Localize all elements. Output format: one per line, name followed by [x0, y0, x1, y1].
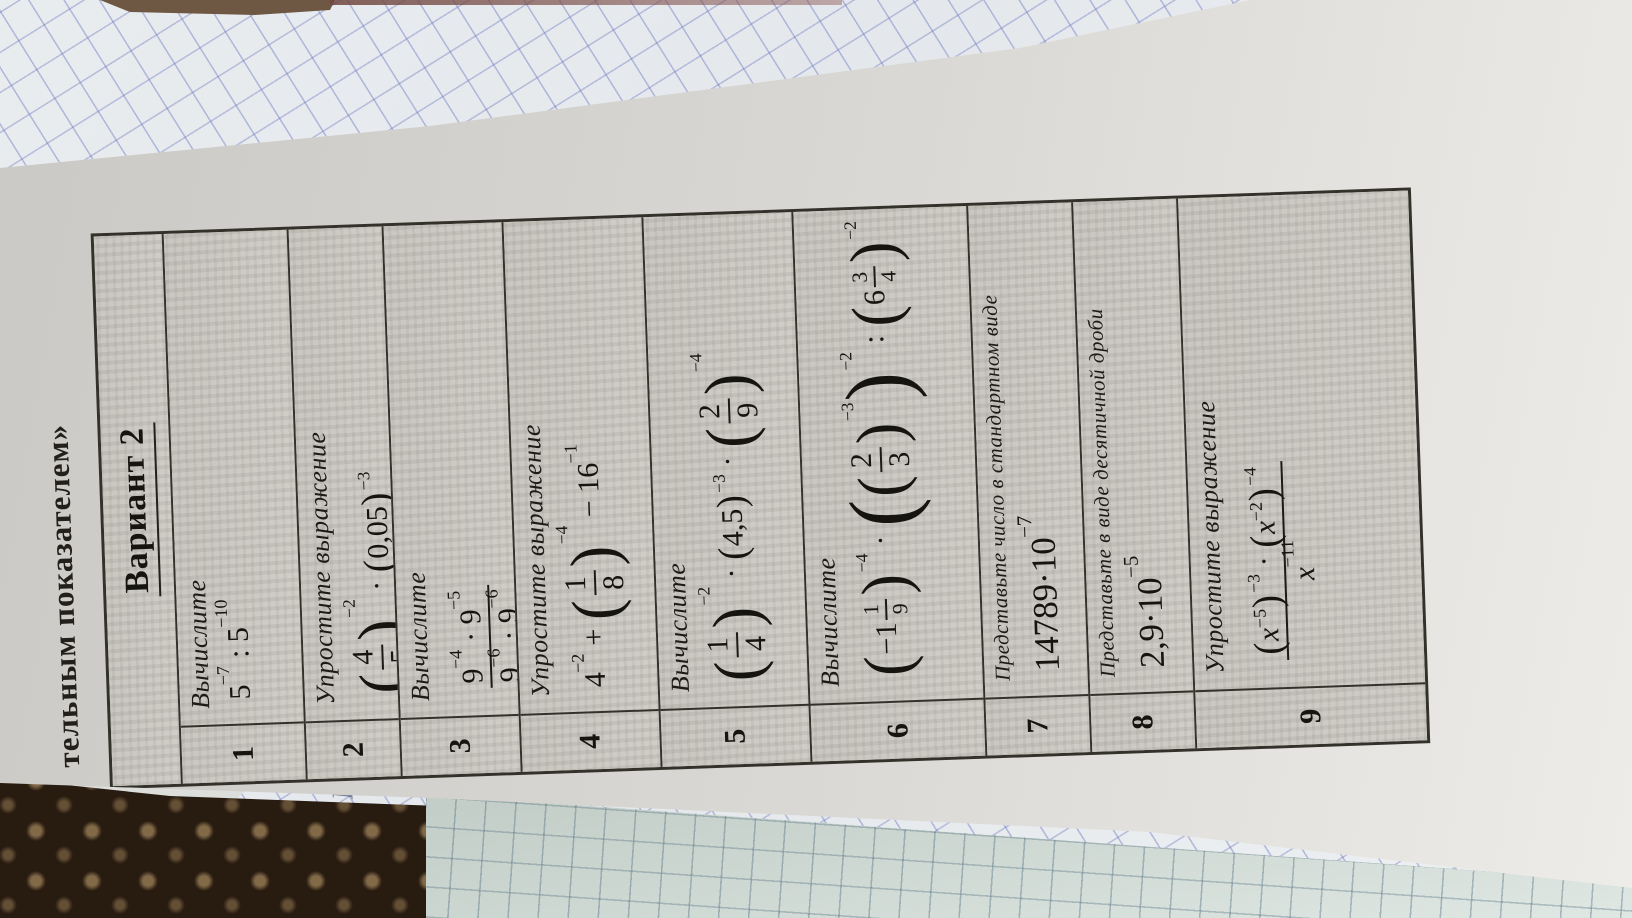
- problem-formula: 5−7 : 5−10: [207, 235, 258, 700]
- formula-exponent: −10: [210, 599, 231, 628]
- group-content: 29: [693, 394, 765, 427]
- formula-text: 4: [739, 636, 773, 652]
- open-paren: (: [704, 426, 755, 450]
- problem-number: 6: [810, 698, 985, 762]
- group-exponent: −2: [840, 221, 862, 240]
- open-paren: (: [848, 497, 917, 529]
- formula-fraction: 23: [845, 446, 917, 473]
- problem-content: Представьте число в стандартном виде 147…: [968, 202, 1088, 697]
- problem-row: 5 Вычислите (14)−2 · (4,5)−3 · (29)−4: [643, 212, 812, 767]
- problem-row: 4 Упростите выражение 4−2 + (18)−4 − 16−…: [503, 217, 662, 772]
- problem-number: 9: [1195, 682, 1427, 748]
- formula-exponent: −7: [1012, 515, 1037, 538]
- group-exponent: −3: [708, 474, 730, 493]
- problems-table: Вариант 2 1 Вычислите 5−7 : 5−10 2 Упрос…: [91, 187, 1431, 789]
- formula-variable: x: [1252, 627, 1286, 641]
- formula-text: ·: [360, 573, 394, 599]
- formula-exponent: −7: [213, 666, 234, 686]
- group-content: x−5: [1251, 608, 1286, 642]
- formula-text: : 5: [221, 627, 255, 666]
- problem-content: Вычислите 9−4 · 9−59−6 · 9−6: [384, 222, 519, 718]
- formula-text: 9: [888, 603, 912, 615]
- formula-text: 8: [596, 574, 630, 590]
- close-paren: ): [854, 421, 905, 445]
- formula-text: 2: [693, 404, 727, 420]
- formula-exponent: −1: [561, 444, 582, 464]
- problem-row: 7 Представьте число в стандартном виде 1…: [968, 202, 1092, 755]
- formula-text: 1: [559, 576, 593, 592]
- close-paren: ): [356, 618, 399, 642]
- group-exponent: −3: [353, 471, 375, 490]
- open-paren: (: [1254, 641, 1285, 657]
- group-content: x−2: [1248, 501, 1283, 535]
- formula-exponent: −5: [1118, 555, 1143, 578]
- group-content: (23)−3: [843, 400, 918, 499]
- formula-fraction: 19: [859, 598, 912, 621]
- fraction-denominator: 9: [729, 397, 764, 423]
- formula-parenthesized-group: (x−5)−3: [1250, 573, 1286, 656]
- formula-parenthesized-group: (−119)−4: [858, 552, 915, 678]
- fraction-denominator: 5: [383, 643, 399, 669]
- formula-exponent: −6: [481, 589, 502, 609]
- fraction-numerator: 1: [859, 599, 887, 621]
- fraction-numerator: 2: [845, 447, 882, 473]
- problem-row: 9 Упростите выражение (x−5)−3 · (x−2)−4x…: [1178, 191, 1427, 749]
- formula-text: 4: [346, 649, 380, 665]
- formula-fraction: 45: [346, 643, 399, 670]
- problem-number: 2: [306, 718, 401, 779]
- formula-text: 1: [859, 604, 883, 616]
- worksheet-title-fragment: тельным показателем»: [39, 423, 87, 768]
- problem-content: Упростите выражение (45)−2 · (0,05)−3: [289, 226, 399, 721]
- variant-title: Вариант 2: [113, 422, 161, 597]
- fraction-denominator: 8: [595, 569, 630, 595]
- formula-exponent: −4: [445, 650, 466, 670]
- fraction-denominator: 4: [875, 266, 901, 288]
- problem-content: Представьте в виде десятичной дроби 2,9·…: [1073, 199, 1193, 694]
- worksheet-document: тельным показателем» Вариант 2 1 Вычисли…: [31, 185, 1455, 794]
- formula-fraction: 29: [693, 397, 765, 424]
- problem-number: 7: [985, 694, 1090, 756]
- formula-text: − 16: [571, 462, 606, 525]
- open-paren: (: [856, 475, 907, 499]
- fraction-denominator: 9−6 · 9−6: [489, 583, 518, 687]
- problem-row: 8 Представьте в виде десятичной дроби 2,…: [1073, 199, 1197, 752]
- problem-formula: 14789·10−7: [1011, 207, 1068, 672]
- formula-parenthesized-group: (4,5)−3: [714, 473, 751, 561]
- group-exponent: −4: [551, 525, 573, 544]
- group-content: 0,05: [360, 506, 396, 560]
- formula-parenthesized-group: (634)−2: [846, 220, 902, 329]
- group-exponent: −4: [1240, 467, 1260, 486]
- formula-parenthesized-group: (45)−2: [345, 597, 399, 696]
- formula-fraction: 14: [701, 631, 773, 658]
- close-paren: ): [1252, 594, 1283, 610]
- problem-row: 3 Вычислите 9−4 · 9−59−6 · 9−6: [384, 222, 523, 776]
- fraction-numerator: 1: [559, 571, 596, 597]
- formula-parenthesized-group: ((23)−3)−2: [841, 350, 918, 529]
- group-exponent: −3: [1244, 574, 1264, 593]
- open-paren: (: [570, 598, 621, 622]
- formula-text: ·: [711, 448, 745, 474]
- open-paren: (: [863, 654, 914, 678]
- problem-number: 5: [661, 704, 811, 767]
- close-paren: ): [703, 372, 754, 396]
- fraction-denominator: 4: [738, 631, 773, 657]
- problem-content: Вычислите 5−7 : 5−10: [164, 230, 304, 726]
- close-paren: ): [860, 572, 911, 596]
- fraction-numerator: 1: [701, 632, 738, 658]
- open-paren: (: [358, 671, 399, 695]
- close-paren: ): [361, 491, 392, 507]
- formula-text: 2: [845, 453, 879, 469]
- open-paren: (: [713, 659, 764, 683]
- formula-text: 5: [223, 684, 257, 700]
- formula-exponent: −6: [483, 648, 504, 668]
- fraction-denominator: 9: [886, 598, 912, 620]
- group-exponent: −2: [693, 587, 715, 606]
- problem-number: 4: [521, 709, 661, 772]
- group-exponent: −3: [837, 402, 859, 421]
- fraction-denominator: 3: [881, 446, 916, 472]
- formula-text: 9: [731, 402, 765, 418]
- problem-formula: 2,9·10−5: [1116, 203, 1173, 668]
- photo-scene: И тельным показателем» Вариант 2 1 Вычис…: [0, 0, 1632, 918]
- formula-fraction: 34: [848, 266, 901, 289]
- close-paren: ): [569, 544, 620, 568]
- problem-row: 6 Вычислите (−119)−4 · ((23)−3)−2 : (634…: [793, 206, 987, 762]
- problem-number: 1: [181, 721, 306, 783]
- open-paren: (: [718, 546, 749, 562]
- problem-formula: 4−2 + (18)−4 − 16−1: [547, 222, 634, 688]
- group-content: 45: [346, 640, 399, 673]
- formula-exponent: −5: [443, 590, 464, 610]
- group-exponent: −4: [685, 353, 707, 372]
- formula-text: 3: [848, 272, 872, 284]
- formula-exponent: −2: [1245, 502, 1266, 522]
- formula-variable: x: [1248, 520, 1282, 534]
- formula-text: 4: [579, 672, 613, 688]
- formula-exponent: −11: [1277, 540, 1298, 568]
- group-content: 4,5: [715, 508, 750, 547]
- formula-parenthesized-group: (18)−4: [557, 523, 632, 622]
- formula-parenthesized-group: (14)−2: [699, 585, 774, 684]
- formula-exponent: −2: [568, 653, 589, 673]
- formula-text: 1: [701, 637, 735, 653]
- problem-row: 1 Вычислите 5−7 : 5−10: [164, 230, 308, 784]
- formula-text: 14789·10: [1023, 537, 1067, 672]
- formula-text: +: [577, 621, 611, 654]
- formula-parenthesized-group: (0,05)−3: [359, 471, 397, 574]
- formula-text: ·: [1247, 548, 1281, 574]
- problem-formula: 9−4 · 9−59−6 · 9−6: [427, 226, 519, 693]
- problem-formula: (−119)−4 · ((23)−3)−2 : (634)−2: [836, 212, 923, 678]
- formula-parenthesized-group: (x−2)−4: [1246, 466, 1282, 549]
- close-paren: ): [711, 605, 762, 629]
- desk-edge-line: [330, 0, 842, 5]
- formula-fraction: 9−4 · 9−59−6 · 9−6: [452, 583, 519, 689]
- open-paren: (: [850, 304, 901, 328]
- problem-content: Упростите выражение (x−5)−3 · (x−2)−4x−1…: [1178, 191, 1425, 691]
- formula-parenthesized-group: (23)−3: [843, 400, 918, 499]
- formula-text: · 9: [453, 609, 487, 650]
- formula-variable: x: [1288, 566, 1321, 580]
- formula-text: ·: [715, 560, 749, 586]
- fraction-numerator: 4: [346, 644, 383, 670]
- formula-exponent: −5: [1249, 609, 1270, 629]
- group-content: 23: [844, 443, 916, 476]
- problem-number: 8: [1090, 690, 1195, 752]
- formula-fraction: (x−5)−3 · (x−2)−4x−11: [1244, 460, 1325, 661]
- formula-text: 4: [876, 271, 900, 283]
- group-content: −119: [859, 595, 913, 656]
- formula-text: 3: [882, 451, 916, 467]
- formula-text: 0,05: [360, 506, 396, 560]
- close-paren: ): [848, 240, 899, 264]
- problem-content: Вычислите (14)−2 · (4,5)−3 · (29)−4: [643, 212, 808, 709]
- formula-text: :: [857, 327, 891, 351]
- group-exponent: −4: [852, 553, 874, 572]
- problem-number: 3: [401, 714, 521, 776]
- group-content: 634: [848, 263, 902, 307]
- group-content: 18: [559, 566, 631, 599]
- problem-content: Упростите выражение 4−2 + (18)−4 − 16−1: [503, 217, 658, 714]
- formula-text: ·: [864, 527, 898, 553]
- problem-content: Вычислите (−119)−4 · ((23)−3)−2 : (634)−…: [793, 206, 983, 704]
- formula-text: 4,5: [715, 508, 750, 547]
- formula-text: 9: [494, 667, 519, 683]
- formula-parenthesized-group: (29)−4: [691, 351, 766, 450]
- group-exponent: −2: [835, 352, 857, 371]
- close-paren: ): [844, 370, 913, 402]
- open-paren: (: [364, 558, 395, 574]
- formula-text: 6: [858, 290, 893, 306]
- formula-text: 5: [384, 648, 399, 664]
- group-content: 14: [701, 628, 773, 661]
- formula-text: 9: [456, 668, 490, 684]
- group-exponent: −2: [338, 599, 360, 618]
- fraction-numerator: 3: [848, 266, 876, 288]
- problem-formula: (x−5)−3 · (x−2)−4x−11: [1221, 198, 1325, 665]
- fraction-numerator: 2: [693, 398, 730, 424]
- problems-table-rows: 1 Вычислите 5−7 : 5−10 2 Упростите выраж…: [164, 191, 1427, 784]
- formula-text: 2,9·10: [1130, 577, 1172, 669]
- formula-text: −1: [869, 622, 904, 655]
- formula-fraction: 18: [559, 569, 631, 596]
- close-paren: ): [1249, 487, 1280, 503]
- close-paren: ): [717, 494, 748, 510]
- fraction-denominator: x−11: [1283, 460, 1326, 660]
- formula-text: · 9: [492, 607, 519, 648]
- problem-formula: (14)−2 · (4,5)−3 · (29)−4: [687, 217, 774, 683]
